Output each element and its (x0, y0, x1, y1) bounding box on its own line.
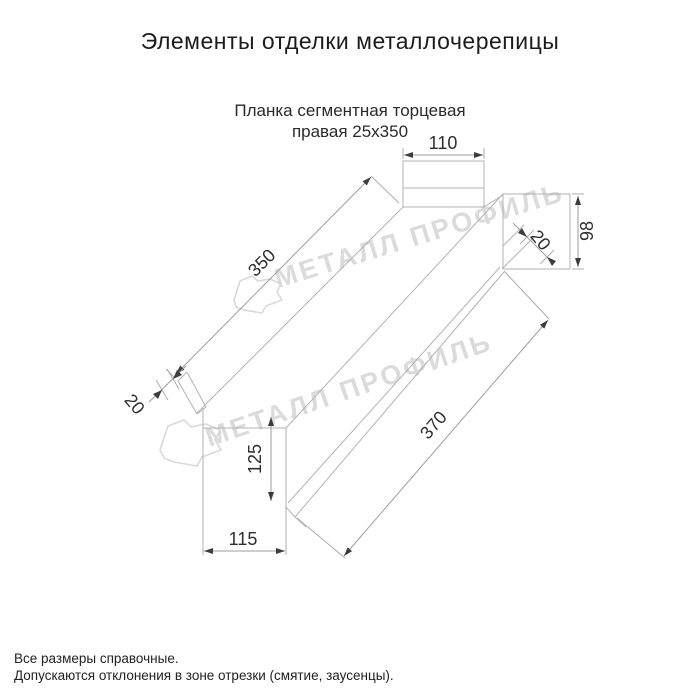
top-cap-face (403, 161, 484, 207)
dim-110: 110 (429, 133, 458, 153)
footnote-line2: Допускаются отклонения в зоне отрезки (с… (14, 667, 394, 684)
footnote-line1: Все размеры справочные. (14, 650, 394, 667)
dim-125: 125 (245, 444, 265, 474)
dim-115: 115 (229, 529, 258, 549)
dim-20-left: 20 (120, 390, 148, 418)
dim-20-right: 20 (526, 226, 554, 254)
product-drawing-page: Элементы отделки металлочерепицы Планка … (0, 0, 700, 700)
dim-370: 370 (416, 407, 451, 443)
technical-drawing-canvas: МЕТАЛЛ ПРОФИЛЬ МЕТАЛЛ ПРОФИЛЬ (0, 0, 700, 700)
dim-98: 98 (577, 221, 597, 241)
watermark-upper: МЕТАЛЛ ПРОФИЛЬ (234, 177, 568, 313)
footnotes: Все размеры справочные. Допускаются откл… (14, 650, 394, 684)
watermark-text: МЕТАЛЛ ПРОФИЛЬ (271, 177, 568, 294)
watermark-lower: МЕТАЛЛ ПРОФИЛЬ (160, 326, 496, 466)
watermark-text: МЕТАЛЛ ПРОФИЛЬ (202, 326, 497, 452)
